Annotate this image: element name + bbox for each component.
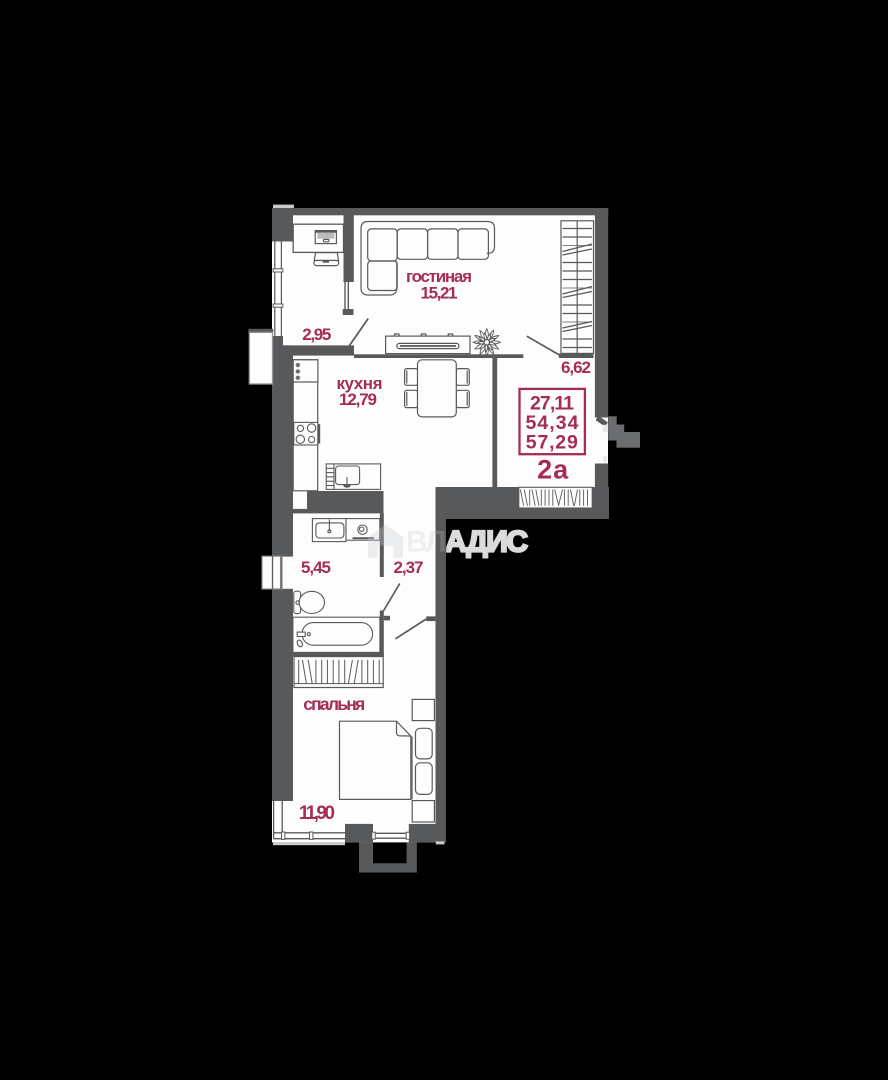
svg-text:2,95: 2,95 [302,325,331,344]
svg-text:11,90: 11,90 [299,803,335,824]
svg-text:6,62: 6,62 [561,358,591,377]
svg-text:5,45: 5,45 [301,558,331,577]
svg-text:2,37: 2,37 [394,558,424,577]
svg-text:57,29: 57,29 [526,431,578,453]
svg-text:15,21: 15,21 [421,284,458,303]
svg-text:2а: 2а [537,455,569,485]
svg-text:спальня: спальня [303,694,365,714]
svg-text:12,79: 12,79 [339,390,377,409]
